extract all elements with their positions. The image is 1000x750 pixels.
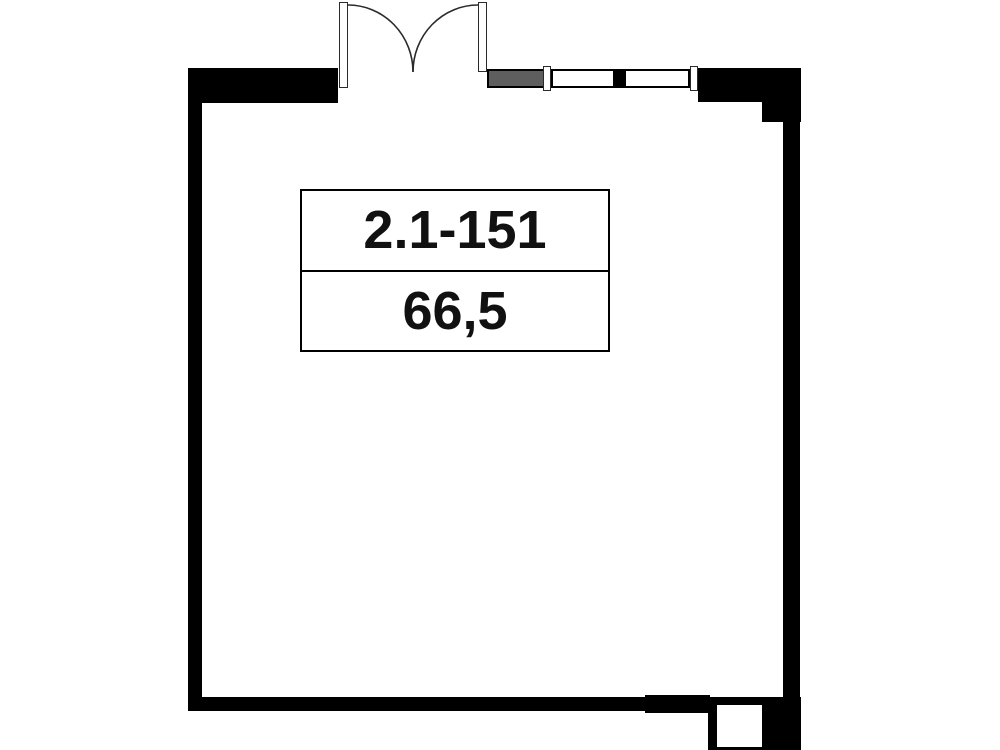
door-swing-arc-left <box>348 5 413 72</box>
unit-label-box: 2.1-151 66,5 <box>300 189 610 352</box>
door-swing-arc-right <box>413 5 478 72</box>
door-swing-arcs <box>0 0 1000 750</box>
unit-number: 2.1-151 <box>302 191 608 272</box>
floor-plan: 2.1-151 66,5 <box>0 0 1000 750</box>
unit-area: 66,5 <box>302 272 608 351</box>
